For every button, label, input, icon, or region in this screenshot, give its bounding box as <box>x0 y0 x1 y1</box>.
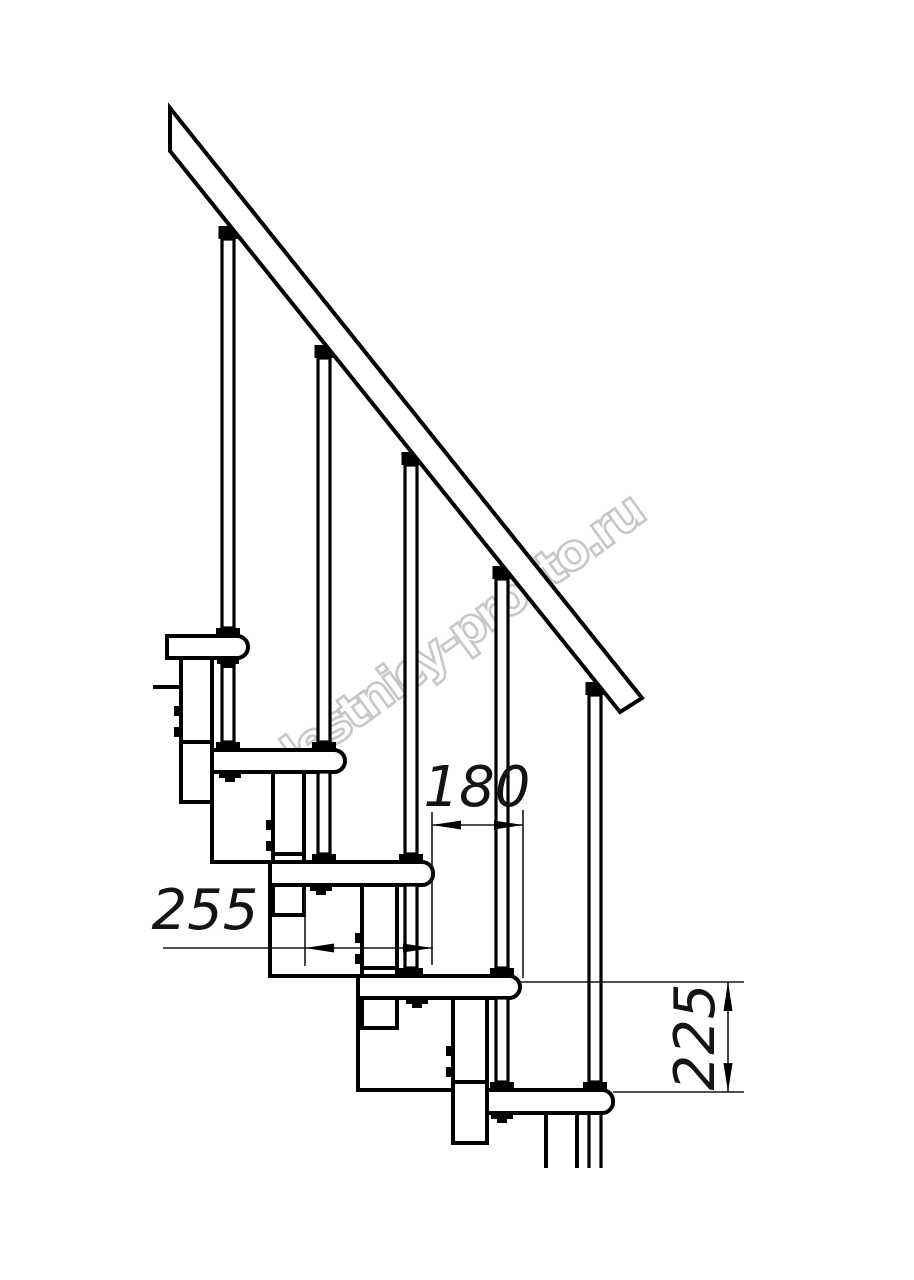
rod-foot <box>399 968 423 976</box>
support-column <box>181 658 212 802</box>
support-column <box>453 998 487 1143</box>
column-bolt <box>174 727 183 737</box>
tread-flange <box>312 742 336 750</box>
staircase-drawing: lestnicy-prosto.ru <box>0 0 914 1280</box>
support-column-cut <box>546 1113 577 1168</box>
arrow-left-icon <box>432 821 461 830</box>
tread-flange <box>216 628 240 636</box>
column-bolt <box>266 820 275 830</box>
module-panel <box>270 885 362 976</box>
drawing-page: lestnicy-prosto.ru <box>0 0 914 1280</box>
rod-foot <box>490 1082 514 1090</box>
dimension-label-255: 255 <box>152 878 259 943</box>
column-bracket <box>273 885 304 915</box>
dimension-180: 180 <box>424 755 531 978</box>
tread-nut <box>310 885 332 895</box>
baluster-rod <box>318 772 330 854</box>
tread-4 <box>358 976 520 998</box>
dimension-225: 225 <box>520 982 744 1092</box>
tread-flange <box>583 1082 607 1090</box>
baluster-rod <box>405 885 417 968</box>
column-bracket <box>362 998 397 1028</box>
module-panel <box>358 998 453 1090</box>
rod-foot <box>216 742 240 750</box>
tread-2 <box>212 750 345 772</box>
dimension-label-180: 180 <box>424 755 531 820</box>
baluster-rod <box>222 239 234 628</box>
column-bolt <box>446 1067 455 1077</box>
baluster-rod <box>405 465 417 854</box>
dimension-label-225: 225 <box>663 984 728 1091</box>
column-bolt <box>266 841 275 851</box>
baluster-3 <box>399 452 423 976</box>
tread-flange <box>399 854 423 862</box>
column-bolt <box>355 933 364 943</box>
baluster-rod <box>496 998 508 1082</box>
arrow-left-icon <box>305 944 334 953</box>
baluster-2 <box>312 345 336 862</box>
tread-flange <box>490 968 514 976</box>
tread-1 <box>167 636 248 658</box>
tread-nut <box>219 772 241 782</box>
baluster-rod <box>589 695 601 1082</box>
module-panel <box>212 772 273 862</box>
column-bolt <box>174 706 183 716</box>
baluster-rod <box>222 658 234 742</box>
tread-3 <box>270 862 433 885</box>
support-column <box>273 772 304 862</box>
column-bolt <box>355 954 364 964</box>
baluster-rod <box>318 358 330 742</box>
tread-nut <box>491 1113 513 1123</box>
tread-nut <box>406 998 428 1008</box>
baluster-1 <box>216 226 240 750</box>
support-column <box>362 885 397 976</box>
column-bolt <box>446 1046 455 1056</box>
tread-nut <box>217 658 239 668</box>
baluster-rod-cut <box>589 1113 601 1168</box>
balusters <box>216 226 607 1168</box>
rod-foot <box>312 854 336 862</box>
